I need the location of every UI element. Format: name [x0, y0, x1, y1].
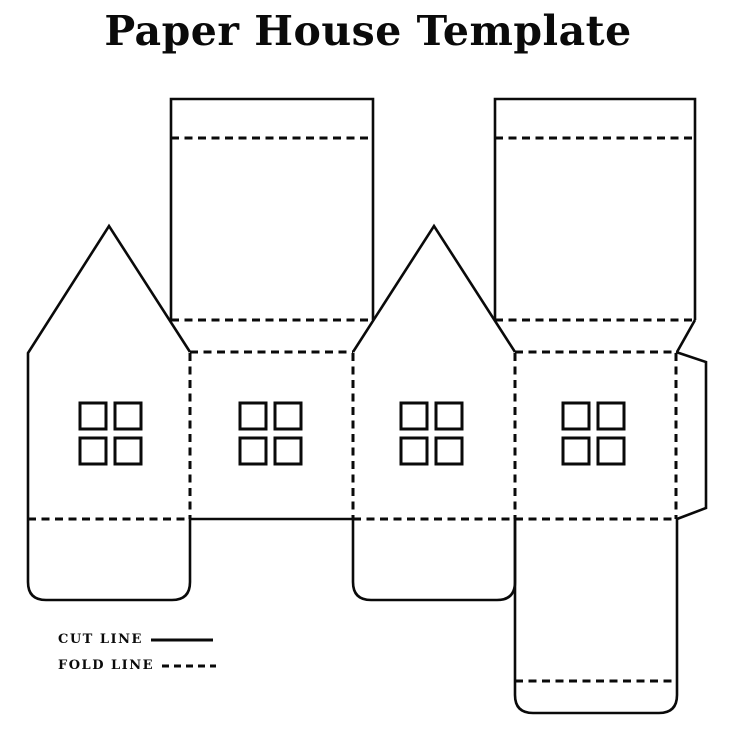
window-pane [115, 403, 141, 429]
roof-panel-left-outline [171, 99, 373, 320]
house-template-drawing [0, 0, 736, 736]
base-panel-outline [515, 519, 677, 713]
window-wall-4 [563, 403, 624, 464]
legend-cut-line-label: CUT LINE [58, 632, 143, 647]
legend-cut-line-row: CUT LINE [58, 631, 216, 648]
window-pane [275, 403, 301, 429]
legend-fold-line-row: FOLD LINE [58, 657, 216, 674]
window-pane [275, 438, 301, 464]
window-pane [115, 438, 141, 464]
window-pane [436, 403, 462, 429]
dashed-line-sample-icon [162, 663, 216, 669]
window-pane [80, 403, 106, 429]
window-wall-1 [80, 403, 141, 464]
solid-line-sample-icon [151, 637, 213, 643]
bottom-flap-middle-outline [353, 519, 515, 600]
roof-panel-right-outline [495, 99, 695, 320]
window-pane [563, 403, 589, 429]
window-pane [563, 438, 589, 464]
cut-lines [28, 99, 706, 713]
template-page: Paper House Template [0, 0, 736, 736]
legend: CUT LINE FOLD LINE [58, 631, 216, 674]
gable-peak-middle-outline [353, 226, 515, 352]
window-pane [80, 438, 106, 464]
window-pane [240, 438, 266, 464]
window-wall-3 [401, 403, 462, 464]
window-pane [401, 403, 427, 429]
roof-eave-connector-right [677, 320, 695, 352]
window-pane [598, 403, 624, 429]
window-pane [436, 438, 462, 464]
glue-tab-outline [676, 352, 706, 519]
window-pane [598, 438, 624, 464]
legend-fold-line-label: FOLD LINE [58, 658, 154, 673]
window-wall-2 [240, 403, 301, 464]
window-pane [240, 403, 266, 429]
window-pane [401, 438, 427, 464]
gable-wall-left-outline [28, 226, 190, 600]
